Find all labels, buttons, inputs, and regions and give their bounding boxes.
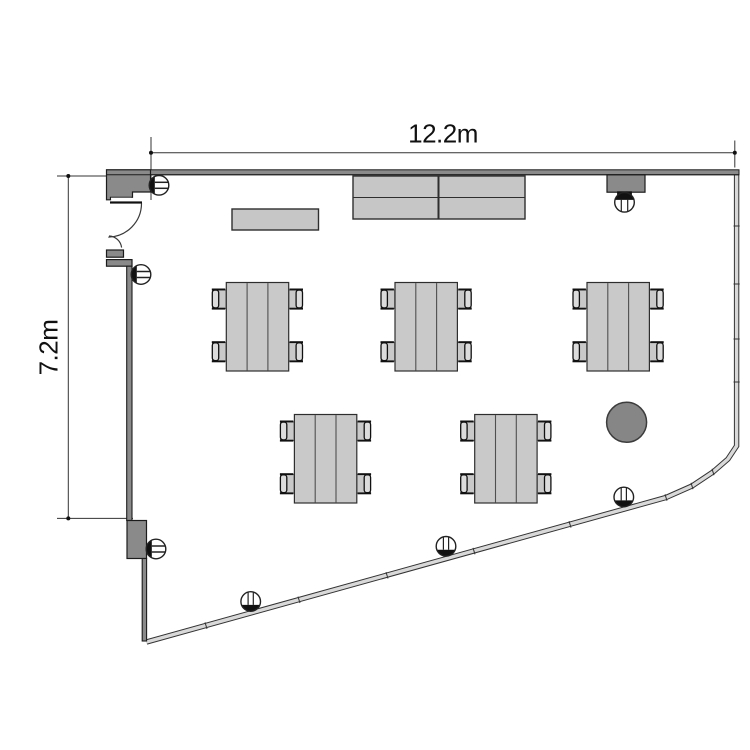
svg-text:12.2m: 12.2m [408, 119, 478, 149]
svg-text:7.2m: 7.2m [34, 320, 64, 376]
